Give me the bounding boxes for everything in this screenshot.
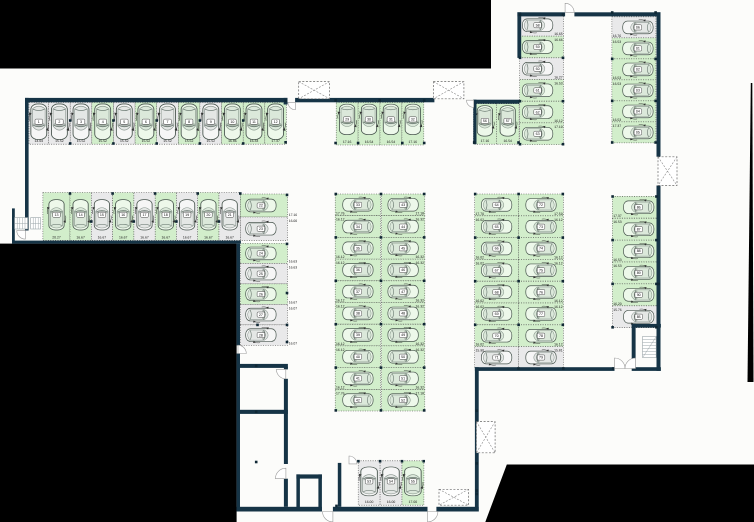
svg-text:16.12: 16.12 [336, 255, 345, 259]
svg-text:1: 1 [38, 120, 40, 124]
svg-text:17.16: 17.16 [343, 140, 352, 144]
svg-text:17: 17 [143, 213, 147, 217]
svg-text:7: 7 [167, 120, 169, 124]
svg-text:16.32: 16.32 [416, 342, 425, 346]
svg-text:46: 46 [401, 268, 405, 272]
svg-text:17.70: 17.70 [476, 212, 485, 216]
svg-text:16.12: 16.12 [336, 261, 345, 265]
svg-text:54: 54 [389, 480, 393, 484]
svg-text:16.12: 16.12 [554, 343, 563, 347]
svg-text:16.02: 16.02 [476, 299, 485, 303]
svg-text:16.33: 16.33 [250, 139, 259, 143]
svg-text:90: 90 [637, 293, 641, 297]
svg-text:16.12: 16.12 [336, 348, 345, 352]
svg-text:16.63: 16.63 [289, 265, 298, 269]
svg-text:16.32: 16.32 [416, 305, 425, 309]
svg-text:36: 36 [356, 268, 360, 272]
svg-text:16.32: 16.32 [416, 261, 425, 265]
svg-text:77: 77 [539, 312, 543, 316]
svg-text:27: 27 [259, 313, 263, 317]
svg-text:16.12: 16.12 [554, 261, 563, 265]
svg-text:15.52: 15.52 [142, 139, 151, 143]
svg-text:8: 8 [188, 120, 190, 124]
svg-text:17.59: 17.59 [554, 212, 563, 216]
svg-text:67: 67 [495, 269, 499, 273]
svg-text:15.81: 15.81 [554, 349, 563, 353]
svg-text:33: 33 [356, 203, 360, 207]
svg-text:3: 3 [80, 120, 82, 124]
svg-text:2: 2 [58, 120, 60, 124]
svg-text:16.53: 16.53 [613, 76, 622, 80]
svg-text:51: 51 [401, 377, 405, 381]
svg-text:79: 79 [539, 356, 543, 360]
svg-text:16.07: 16.07 [289, 306, 298, 310]
svg-text:62: 62 [536, 110, 540, 114]
svg-text:11: 11 [252, 120, 256, 124]
svg-text:63: 63 [536, 132, 540, 136]
svg-text:42: 42 [356, 398, 360, 402]
svg-text:16.67: 16.67 [162, 235, 171, 239]
svg-text:16.54: 16.54 [503, 139, 512, 143]
svg-text:14.04: 14.04 [35, 139, 44, 143]
svg-text:10: 10 [230, 120, 234, 124]
svg-text:6: 6 [145, 120, 147, 124]
svg-text:16.53: 16.53 [613, 264, 622, 268]
svg-text:70: 70 [495, 334, 499, 338]
svg-text:43: 43 [401, 203, 405, 207]
svg-text:29: 29 [345, 118, 349, 122]
svg-text:16.65: 16.65 [554, 32, 563, 36]
svg-text:17.37: 17.37 [271, 139, 280, 143]
svg-text:61: 61 [536, 89, 540, 93]
svg-text:56: 56 [483, 119, 487, 123]
svg-text:16.12: 16.12 [554, 255, 563, 259]
svg-text:21: 21 [228, 213, 232, 217]
svg-text:40: 40 [356, 355, 360, 359]
svg-text:19: 19 [185, 213, 189, 217]
svg-text:16.53: 16.53 [613, 220, 622, 224]
svg-text:16.07: 16.07 [289, 341, 298, 345]
svg-text:06: 06 [636, 26, 640, 30]
svg-text:16.66: 16.66 [554, 38, 563, 42]
svg-text:69: 69 [495, 312, 499, 316]
svg-text:16: 16 [121, 213, 125, 217]
svg-text:17.76: 17.76 [336, 391, 345, 395]
svg-text:24: 24 [259, 252, 263, 256]
svg-text:72: 72 [539, 203, 543, 207]
svg-text:16.53: 16.53 [613, 82, 622, 86]
svg-text:37: 37 [356, 290, 360, 294]
svg-text:16.12: 16.12 [336, 385, 345, 389]
svg-text:04: 04 [636, 110, 640, 114]
svg-text:52: 52 [401, 398, 405, 402]
svg-text:16.53: 16.53 [613, 258, 622, 262]
svg-text:17.00: 17.00 [409, 500, 418, 504]
svg-text:16.54: 16.54 [387, 140, 396, 144]
svg-text:16.12: 16.12 [554, 119, 563, 123]
svg-text:16.32: 16.32 [416, 218, 425, 222]
svg-text:5: 5 [123, 120, 125, 124]
svg-text:16.86: 16.86 [228, 139, 237, 143]
svg-text:31: 31 [389, 118, 393, 122]
svg-text:60: 60 [536, 67, 540, 71]
svg-text:23: 23 [259, 227, 263, 231]
svg-text:16.27: 16.27 [554, 76, 563, 80]
svg-text:17.37: 17.37 [613, 214, 622, 218]
svg-text:15: 15 [100, 213, 104, 217]
svg-text:20: 20 [206, 213, 210, 217]
svg-text:68: 68 [495, 290, 499, 294]
svg-text:03: 03 [636, 89, 640, 93]
svg-text:47: 47 [401, 290, 405, 294]
svg-text:17.19: 17.19 [554, 125, 563, 129]
svg-text:16.54: 16.54 [365, 140, 374, 144]
svg-text:53: 53 [367, 480, 371, 484]
svg-text:16.12: 16.12 [554, 218, 563, 222]
svg-text:16.67: 16.67 [140, 235, 149, 239]
svg-text:16.67: 16.67 [204, 235, 213, 239]
svg-text:34: 34 [356, 225, 360, 229]
svg-text:15.52: 15.52 [77, 139, 86, 143]
svg-text:78: 78 [539, 334, 543, 338]
svg-text:74: 74 [539, 247, 543, 251]
svg-text:16.12: 16.12 [336, 218, 345, 222]
svg-text:16.12: 16.12 [554, 299, 563, 303]
svg-text:15.52: 15.52 [163, 139, 172, 143]
svg-text:16.02: 16.02 [476, 305, 485, 309]
svg-text:49: 49 [401, 333, 405, 337]
svg-text:16.12: 16.12 [336, 342, 345, 346]
svg-text:16.00: 16.00 [289, 219, 298, 223]
svg-text:64: 64 [495, 203, 499, 207]
svg-text:66: 66 [495, 247, 499, 251]
svg-text:16.02: 16.02 [476, 255, 485, 259]
svg-text:16.32: 16.32 [416, 255, 425, 259]
svg-text:71: 71 [495, 356, 499, 360]
svg-text:16.63: 16.63 [289, 259, 298, 263]
svg-text:16.12: 16.12 [554, 305, 563, 309]
svg-text:4: 4 [102, 120, 104, 124]
svg-text:16.02: 16.02 [476, 343, 485, 347]
svg-text:15.52: 15.52 [55, 139, 64, 143]
svg-text:45: 45 [401, 246, 405, 250]
svg-text:17.18: 17.18 [416, 391, 425, 395]
svg-text:05: 05 [636, 131, 640, 135]
svg-text:18: 18 [164, 213, 168, 217]
svg-text:32: 32 [411, 118, 415, 122]
svg-text:16.02: 16.02 [476, 218, 485, 222]
svg-text:16.12: 16.12 [336, 299, 345, 303]
svg-text:16.67: 16.67 [119, 235, 128, 239]
svg-text:41: 41 [356, 377, 360, 381]
svg-text:17.16: 17.16 [409, 140, 418, 144]
svg-text:16.67: 16.67 [289, 300, 298, 304]
svg-text:16.67: 16.67 [76, 235, 85, 239]
svg-text:15.90: 15.90 [476, 349, 485, 353]
svg-text:65: 65 [495, 225, 499, 229]
svg-text:16.02: 16.02 [476, 261, 485, 265]
svg-text:88: 88 [637, 249, 641, 253]
svg-text:16.67: 16.67 [183, 235, 192, 239]
svg-text:39: 39 [356, 333, 360, 337]
svg-text:30: 30 [367, 118, 371, 122]
svg-text:59: 59 [536, 45, 540, 49]
svg-text:15.52: 15.52 [185, 139, 194, 143]
svg-text:16.32: 16.32 [416, 348, 425, 352]
svg-text:16.20: 16.20 [613, 302, 622, 306]
svg-text:87: 87 [637, 227, 641, 231]
svg-text:20.27: 20.27 [52, 235, 61, 239]
svg-text:26: 26 [259, 292, 263, 296]
svg-text:17.16: 17.16 [481, 139, 490, 143]
svg-text:02: 02 [636, 68, 640, 72]
svg-text:16.67: 16.67 [98, 235, 107, 239]
svg-text:25: 25 [259, 272, 263, 276]
svg-text:22: 22 [259, 204, 263, 208]
svg-text:16.53: 16.53 [554, 82, 563, 86]
svg-text:16.32: 16.32 [416, 299, 425, 303]
svg-text:16.53: 16.53 [613, 40, 622, 44]
svg-text:16.00: 16.00 [365, 500, 374, 504]
svg-text:14: 14 [79, 213, 83, 217]
svg-text:17.76: 17.76 [336, 212, 345, 216]
svg-text:15.52: 15.52 [98, 139, 107, 143]
svg-text:12: 12 [274, 120, 278, 124]
svg-text:16.67: 16.67 [225, 235, 234, 239]
svg-text:17.16: 17.16 [289, 213, 298, 217]
svg-text:35: 35 [356, 246, 360, 250]
svg-text:76: 76 [539, 290, 543, 294]
svg-text:86: 86 [637, 205, 641, 209]
svg-text:16.00: 16.00 [387, 500, 396, 504]
svg-text:15.52: 15.52 [207, 139, 216, 143]
svg-text:13: 13 [55, 213, 59, 217]
svg-text:55: 55 [411, 480, 415, 484]
svg-text:9: 9 [210, 120, 212, 124]
svg-text:73: 73 [539, 225, 543, 229]
svg-text:15.76: 15.76 [613, 308, 622, 312]
svg-text:28: 28 [259, 333, 263, 337]
svg-text:17.37: 17.37 [613, 124, 622, 128]
svg-text:50: 50 [401, 355, 405, 359]
svg-text:75: 75 [539, 269, 543, 273]
svg-text:16.76: 16.76 [613, 34, 622, 38]
svg-text:44: 44 [401, 225, 405, 229]
svg-text:58: 58 [536, 23, 540, 27]
svg-text:85: 85 [637, 315, 641, 319]
svg-text:38: 38 [356, 312, 360, 316]
svg-text:48: 48 [401, 312, 405, 316]
svg-text:57: 57 [506, 119, 510, 123]
svg-text:15.52: 15.52 [120, 139, 129, 143]
svg-text:16.53: 16.53 [613, 118, 622, 122]
svg-text:01: 01 [636, 47, 640, 51]
svg-text:17.18: 17.18 [416, 212, 425, 216]
svg-text:16.12: 16.12 [336, 305, 345, 309]
svg-text:89: 89 [637, 271, 641, 275]
svg-text:16.32: 16.32 [416, 385, 425, 389]
